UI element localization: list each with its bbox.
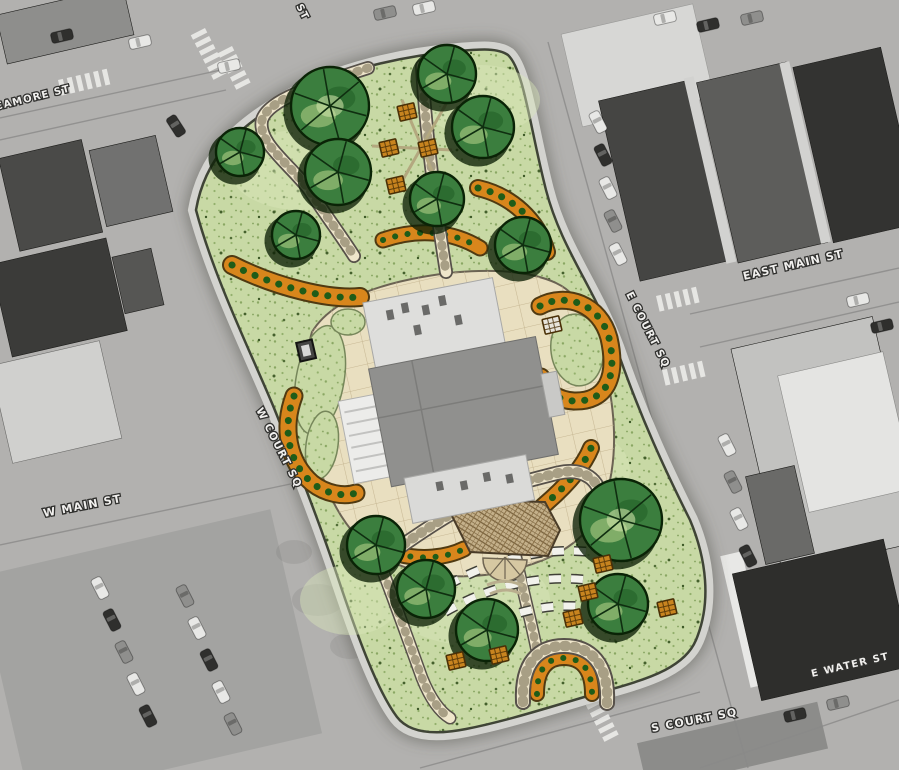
bench-icon	[657, 599, 677, 617]
bench-icon	[386, 176, 406, 194]
bench-icon	[418, 139, 438, 157]
bench-icon	[489, 646, 509, 664]
bench-icon	[542, 316, 562, 334]
aerial-site-plan-map: CAMORE STSTEAST MAIN STE COURT SQW COURT…	[0, 0, 899, 770]
bench-icon	[397, 103, 417, 121]
bench-icon	[563, 609, 583, 627]
bench-icon	[593, 555, 613, 573]
bench-icon	[379, 139, 399, 157]
bench-icon	[446, 652, 466, 670]
monument	[296, 339, 316, 361]
bench-icon	[578, 583, 598, 601]
screenshot-root: CAMORE STSTEAST MAIN STE COURT SQW COURT…	[0, 0, 899, 770]
